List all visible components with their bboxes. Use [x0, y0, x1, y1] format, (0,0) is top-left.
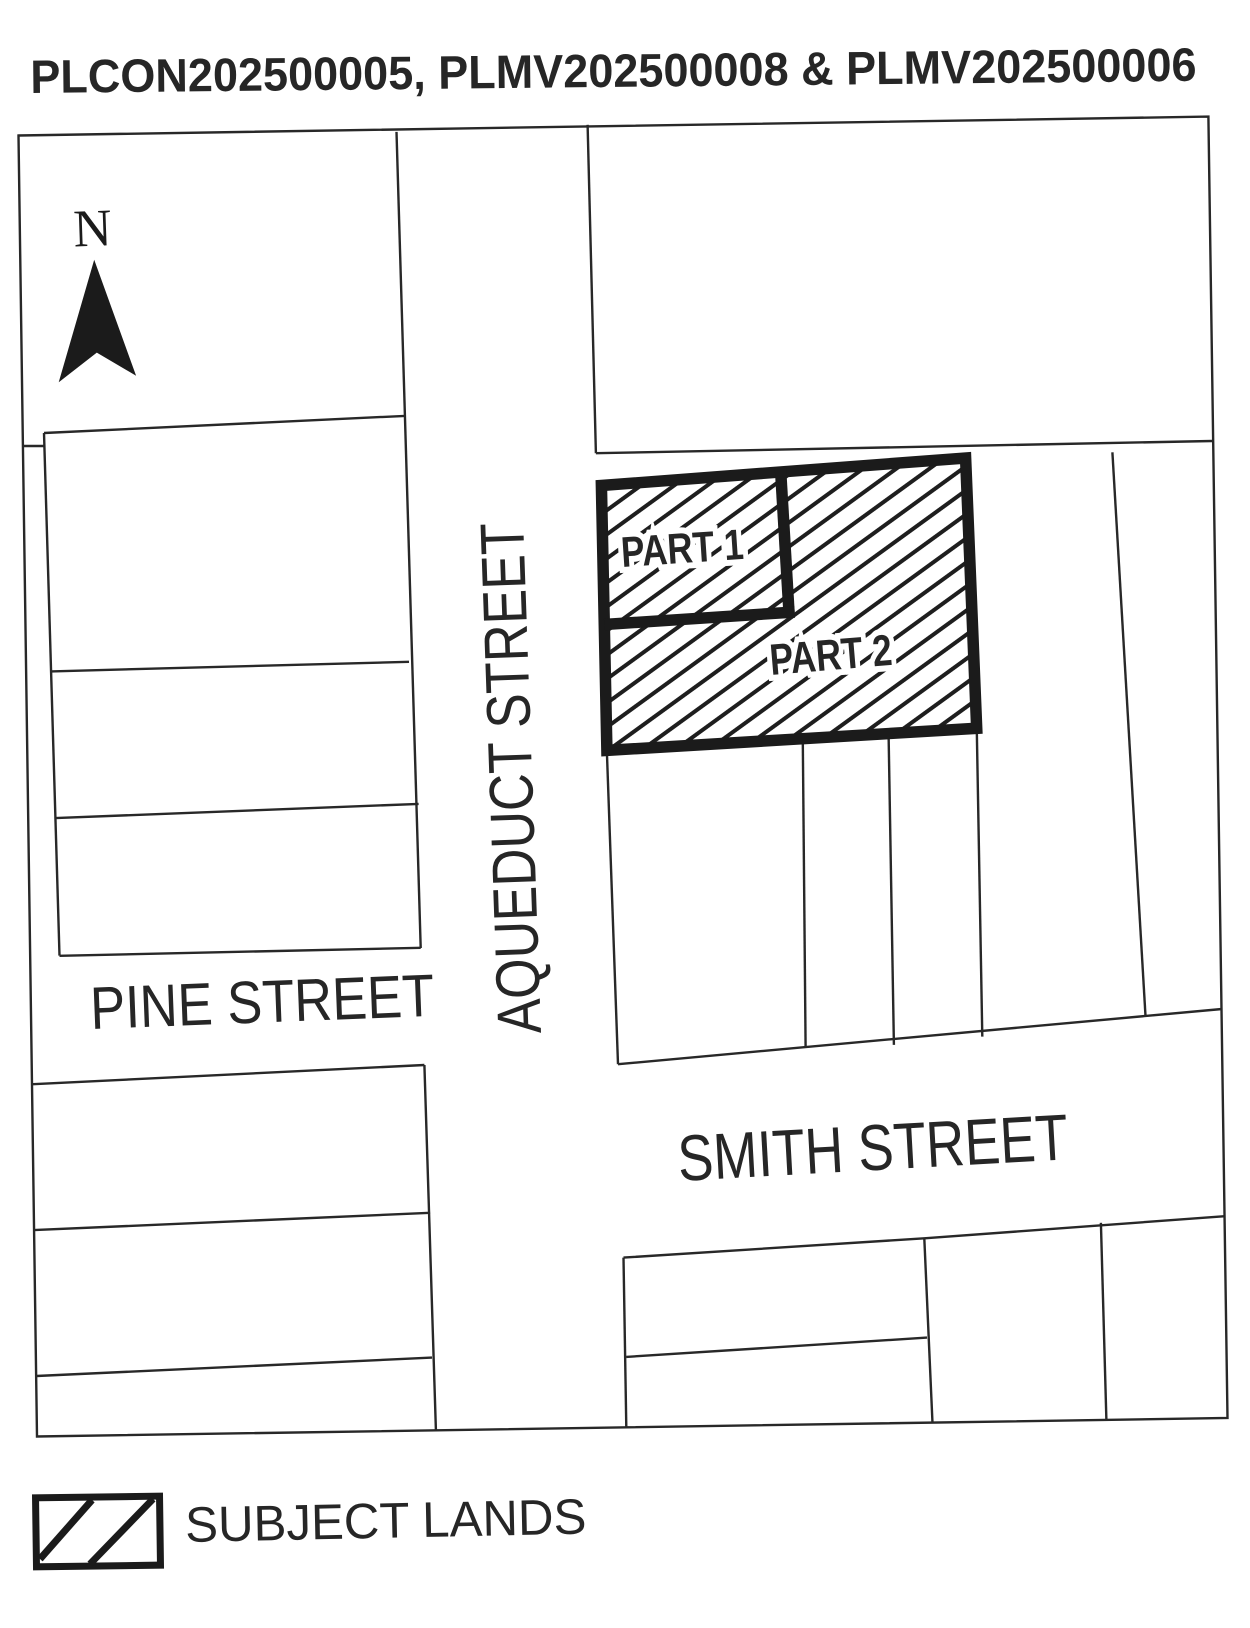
svg-text:SUBJECT LANDS: SUBJECT LANDS — [185, 1488, 587, 1553]
svg-text:PINE STREET: PINE STREET — [89, 962, 435, 1042]
svg-text:PART 1: PART 1 — [619, 521, 745, 577]
svg-text:PART 2: PART 2 — [768, 626, 894, 685]
svg-text:N: N — [72, 199, 112, 258]
